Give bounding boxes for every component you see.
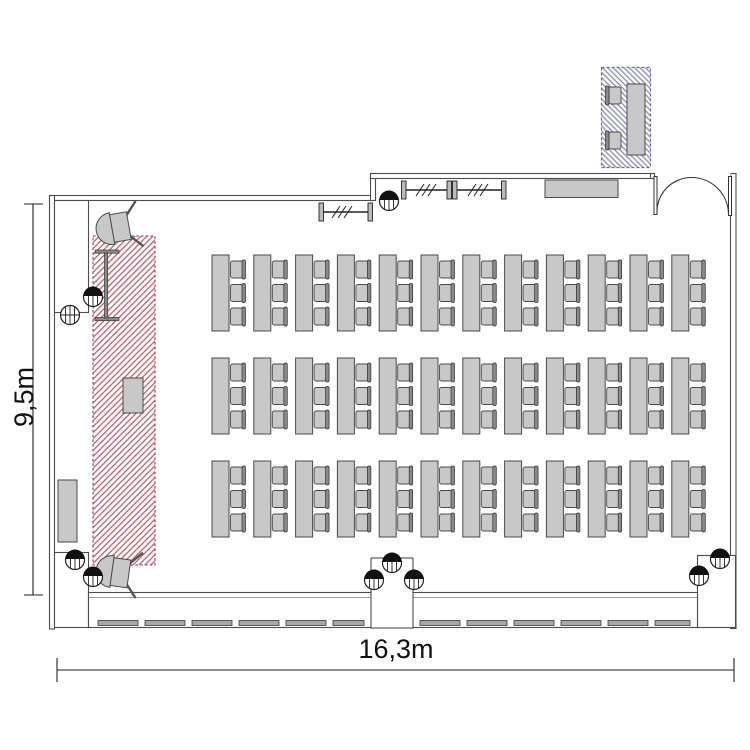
chair xyxy=(481,410,496,429)
table xyxy=(546,461,563,537)
chair xyxy=(231,260,246,279)
coat-rack-right xyxy=(402,181,507,199)
chair xyxy=(690,490,705,509)
spotlight-icon xyxy=(66,550,85,570)
table xyxy=(337,461,354,537)
wall-top-right xyxy=(371,174,655,179)
chair xyxy=(607,410,622,429)
chair xyxy=(356,307,371,326)
chair xyxy=(565,307,580,326)
table xyxy=(630,461,647,537)
table xyxy=(212,255,229,331)
table xyxy=(254,255,271,331)
chair xyxy=(649,284,664,303)
glazing-segment xyxy=(514,621,554,626)
chair xyxy=(356,284,371,303)
chair xyxy=(690,466,705,485)
chair xyxy=(565,387,580,406)
chair xyxy=(607,387,622,406)
chair xyxy=(398,387,413,406)
chair xyxy=(314,284,329,303)
chair xyxy=(314,387,329,406)
chair xyxy=(272,490,287,509)
chair xyxy=(398,284,413,303)
chair xyxy=(314,260,329,279)
glazing-segment xyxy=(420,621,460,626)
glazing-segment xyxy=(145,621,185,626)
table xyxy=(672,255,689,331)
chair xyxy=(565,490,580,509)
table xyxy=(463,255,480,331)
table xyxy=(672,358,689,434)
seating-grid xyxy=(212,255,705,537)
wall-top-left xyxy=(50,196,376,201)
chair xyxy=(231,466,246,485)
chair xyxy=(607,284,622,303)
table xyxy=(212,461,229,537)
chair xyxy=(690,410,705,429)
chair xyxy=(398,363,413,382)
chair xyxy=(523,387,538,406)
wall-left xyxy=(50,196,55,630)
chair xyxy=(440,363,455,382)
chair xyxy=(523,466,538,485)
chair xyxy=(523,410,538,429)
chair xyxy=(231,490,246,509)
table xyxy=(337,255,354,331)
chair xyxy=(398,260,413,279)
table xyxy=(296,255,313,331)
chair xyxy=(607,513,622,532)
chair xyxy=(565,410,580,429)
table xyxy=(379,358,396,434)
chair xyxy=(272,513,287,532)
annex-chair xyxy=(606,131,622,150)
table xyxy=(505,358,522,434)
table xyxy=(379,461,396,537)
glazing-segment xyxy=(333,621,364,626)
chair xyxy=(649,387,664,406)
chair xyxy=(690,363,705,382)
door-swing-left xyxy=(657,177,692,214)
chair xyxy=(314,307,329,326)
spotlight-icon xyxy=(405,570,424,590)
chair xyxy=(523,307,538,326)
table xyxy=(630,358,647,434)
chair xyxy=(565,260,580,279)
chair xyxy=(440,260,455,279)
glazing-segment xyxy=(192,621,232,626)
chair xyxy=(523,260,538,279)
chair xyxy=(440,490,455,509)
chair xyxy=(356,513,371,532)
table xyxy=(505,461,522,537)
chair xyxy=(231,284,246,303)
annex-hatched-zone xyxy=(602,68,651,168)
chair xyxy=(356,466,371,485)
chair xyxy=(649,260,664,279)
chair xyxy=(481,284,496,303)
table xyxy=(254,461,271,537)
chair xyxy=(231,363,246,382)
glazing-segment xyxy=(561,621,601,626)
table xyxy=(588,461,605,537)
chair xyxy=(649,307,664,326)
chair xyxy=(356,387,371,406)
spotlight-icon xyxy=(84,287,103,307)
annex-table xyxy=(627,84,645,155)
lectern xyxy=(123,378,143,413)
chair xyxy=(649,363,664,382)
chair xyxy=(481,307,496,326)
table xyxy=(254,358,271,434)
table xyxy=(546,358,563,434)
coat-rack-left xyxy=(319,203,373,221)
table xyxy=(505,255,522,331)
table xyxy=(463,358,480,434)
chair xyxy=(314,466,329,485)
chair xyxy=(398,513,413,532)
chair xyxy=(523,513,538,532)
chair xyxy=(523,284,538,303)
chair xyxy=(565,513,580,532)
table xyxy=(337,358,354,434)
spotlight-icon xyxy=(84,567,103,587)
chair xyxy=(272,410,287,429)
table xyxy=(672,461,689,537)
chair xyxy=(481,387,496,406)
chair xyxy=(440,284,455,303)
chair xyxy=(649,410,664,429)
glazing-segment xyxy=(608,621,648,626)
chair xyxy=(565,466,580,485)
chair xyxy=(440,513,455,532)
spotlight-icon xyxy=(380,191,399,211)
table xyxy=(588,255,605,331)
chair xyxy=(314,410,329,429)
table xyxy=(546,255,563,331)
chair xyxy=(690,260,705,279)
door-leaf-right xyxy=(729,177,732,216)
glazing-segment xyxy=(286,621,326,626)
chair xyxy=(649,513,664,532)
radiator xyxy=(58,480,77,542)
chair xyxy=(565,363,580,382)
table xyxy=(588,358,605,434)
chair xyxy=(272,307,287,326)
chair xyxy=(481,513,496,532)
table xyxy=(296,358,313,434)
chair xyxy=(398,490,413,509)
sideboard xyxy=(545,180,618,198)
chair xyxy=(523,363,538,382)
glazing-segment xyxy=(239,621,279,626)
chair xyxy=(607,307,622,326)
chair xyxy=(314,363,329,382)
chair xyxy=(314,490,329,509)
table xyxy=(463,461,480,537)
table xyxy=(630,255,647,331)
glazing-segment xyxy=(98,621,138,626)
annex-chair xyxy=(606,86,622,105)
chair xyxy=(398,466,413,485)
chair xyxy=(314,513,329,532)
spotlight-icon xyxy=(383,553,402,573)
chair xyxy=(272,466,287,485)
chair xyxy=(231,307,246,326)
table xyxy=(421,358,438,434)
spotlight-icon xyxy=(61,306,80,325)
chair xyxy=(481,490,496,509)
chair xyxy=(231,410,246,429)
spotlight-icon xyxy=(711,549,730,569)
table xyxy=(421,461,438,537)
chair xyxy=(607,490,622,509)
chair xyxy=(690,387,705,406)
chair xyxy=(356,363,371,382)
chair xyxy=(398,307,413,326)
chair xyxy=(440,410,455,429)
chair xyxy=(272,363,287,382)
width-dimension-label: 16,3m xyxy=(336,634,456,664)
chair xyxy=(690,284,705,303)
chair xyxy=(272,284,287,303)
chair xyxy=(440,307,455,326)
chair xyxy=(231,387,246,406)
table xyxy=(212,358,229,434)
chair xyxy=(398,410,413,429)
chair xyxy=(607,260,622,279)
table xyxy=(421,255,438,331)
spotlight-icon xyxy=(690,566,709,586)
floor-plan: 9,5m 16,3m xyxy=(0,0,750,750)
chair xyxy=(481,260,496,279)
chair xyxy=(523,490,538,509)
chair xyxy=(356,410,371,429)
chair xyxy=(607,466,622,485)
chair xyxy=(356,490,371,509)
glazing-segment xyxy=(655,621,690,626)
table xyxy=(379,255,396,331)
chair xyxy=(481,466,496,485)
chair xyxy=(356,260,371,279)
chair xyxy=(565,284,580,303)
spotlight-icon xyxy=(365,570,384,590)
table xyxy=(296,461,313,537)
chair xyxy=(481,363,496,382)
glazing-segment xyxy=(467,621,507,626)
chair xyxy=(649,466,664,485)
door-swing-right xyxy=(692,178,729,216)
chair xyxy=(690,307,705,326)
height-dimension-label: 9,5m xyxy=(10,347,38,447)
chair xyxy=(440,466,455,485)
double-door xyxy=(651,172,732,216)
chair xyxy=(649,490,664,509)
chair xyxy=(231,513,246,532)
chair xyxy=(690,513,705,532)
chair xyxy=(607,363,622,382)
chair xyxy=(440,387,455,406)
chair xyxy=(272,387,287,406)
chair xyxy=(272,260,287,279)
